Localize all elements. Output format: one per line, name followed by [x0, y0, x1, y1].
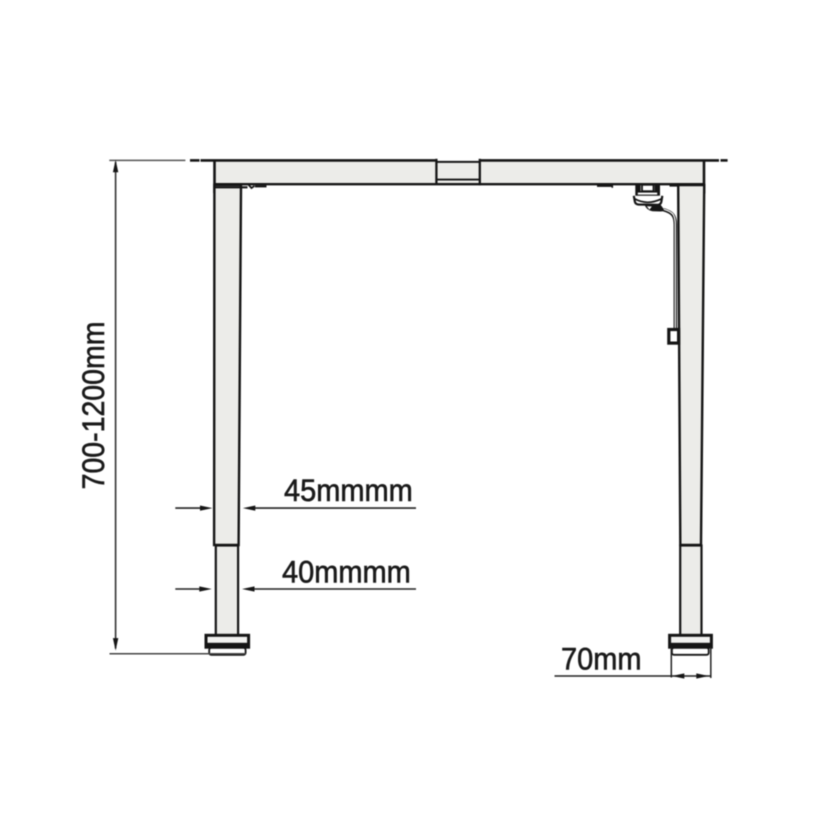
svg-text:40mmmm: 40mmmm — [282, 554, 411, 590]
svg-text:700-1200mm: 700-1200mm — [77, 322, 111, 490]
svg-text:45mmmm: 45mmmm — [284, 473, 413, 509]
svg-text:70mm: 70mm — [561, 641, 642, 677]
